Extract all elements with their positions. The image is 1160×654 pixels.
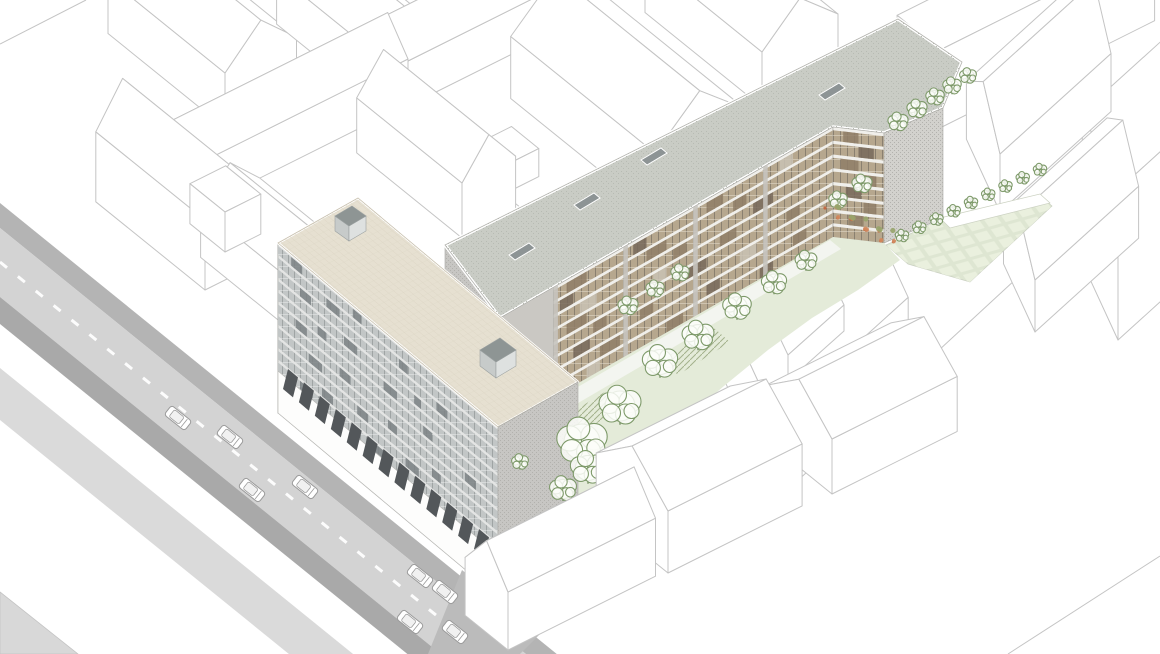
road-wedge bbox=[0, 592, 78, 654]
tree bbox=[964, 196, 977, 208]
tree bbox=[947, 205, 960, 217]
street-edge-line bbox=[0, 0, 86, 44]
tree bbox=[982, 188, 995, 200]
street-edge-line bbox=[1008, 556, 1160, 654]
axonometric-site-rendering bbox=[0, 0, 1160, 654]
scene-canvas bbox=[0, 0, 1160, 654]
